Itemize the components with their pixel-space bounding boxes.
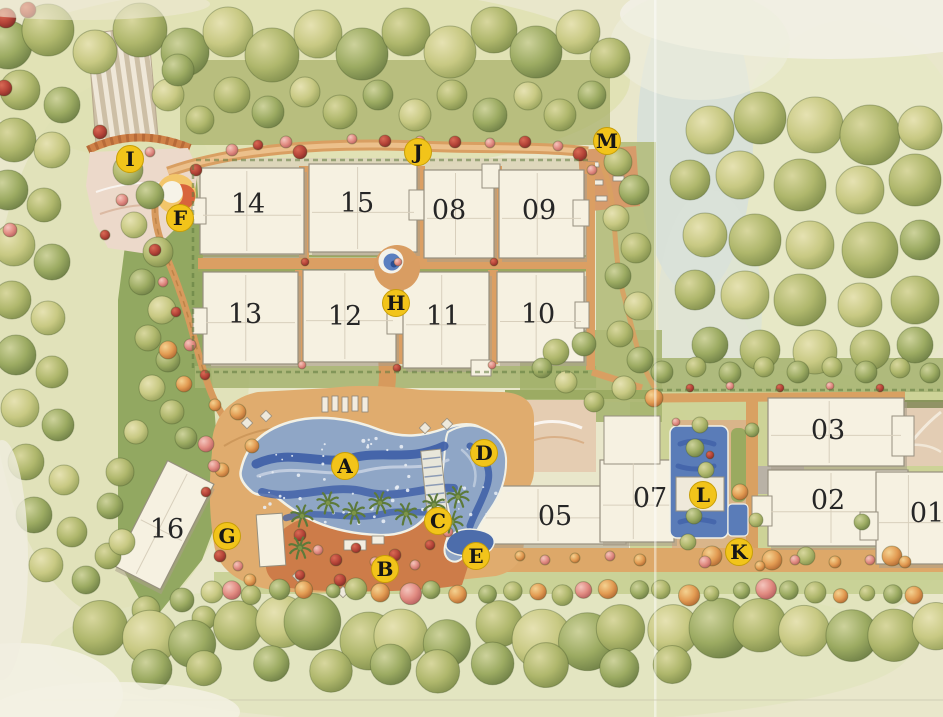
marker-B: B (372, 556, 399, 583)
building-number-15: 15 (340, 188, 374, 219)
fold-seam (654, 0, 657, 717)
marker-F: F (167, 205, 194, 232)
marker-D: D (471, 440, 498, 467)
building-number-01: 01 (910, 498, 943, 529)
marker-H: H (383, 290, 410, 317)
marker-letter-I: I (125, 147, 134, 171)
water-garden-east (728, 504, 748, 536)
building-number-08: 08 (432, 195, 466, 226)
building-number-07: 07 (633, 483, 667, 514)
marker-K: K (726, 539, 753, 566)
marker-letter-C: C (430, 509, 446, 533)
marker-J: J (405, 139, 432, 166)
marker-letter-H: H (387, 291, 406, 315)
marker-letter-M: M (596, 129, 618, 153)
marker-E: E (463, 543, 490, 570)
marker-letter-J: J (411, 140, 422, 164)
marker-letter-K: K (730, 540, 748, 564)
marker-M: M (594, 128, 621, 155)
site-plan: 1415080913121110160507030201 ABCDEFGHIJK… (0, 0, 943, 717)
building-number-11: 11 (426, 301, 460, 332)
building-number-16: 16 (150, 514, 184, 545)
marker-G: G (214, 523, 241, 550)
building-number-03: 03 (811, 415, 845, 446)
marker-letter-E: E (468, 544, 483, 568)
marker-A: A (332, 453, 359, 480)
pool-pavilion (256, 513, 286, 567)
marker-letter-A: A (336, 454, 353, 478)
marker-letter-G: G (218, 524, 235, 548)
building-number-05: 05 (538, 501, 572, 532)
marker-letter-D: D (475, 441, 492, 465)
marker-C: C (425, 508, 452, 535)
marker-letter-B: B (377, 557, 394, 581)
building-number-09: 09 (522, 195, 556, 226)
site-plan-drawing: 1415080913121110160507030201 ABCDEFGHIJK… (0, 0, 943, 717)
building-number-14: 14 (231, 189, 265, 220)
building-number-10: 10 (521, 299, 555, 330)
building-number-02: 02 (811, 485, 845, 516)
marker-letter-F: F (173, 206, 187, 230)
marker-letter-L: L (696, 483, 710, 507)
building-number-12: 12 (328, 301, 362, 332)
marker-L: L (690, 482, 717, 509)
marker-I: I (117, 146, 144, 173)
building-number-13: 13 (228, 299, 262, 330)
